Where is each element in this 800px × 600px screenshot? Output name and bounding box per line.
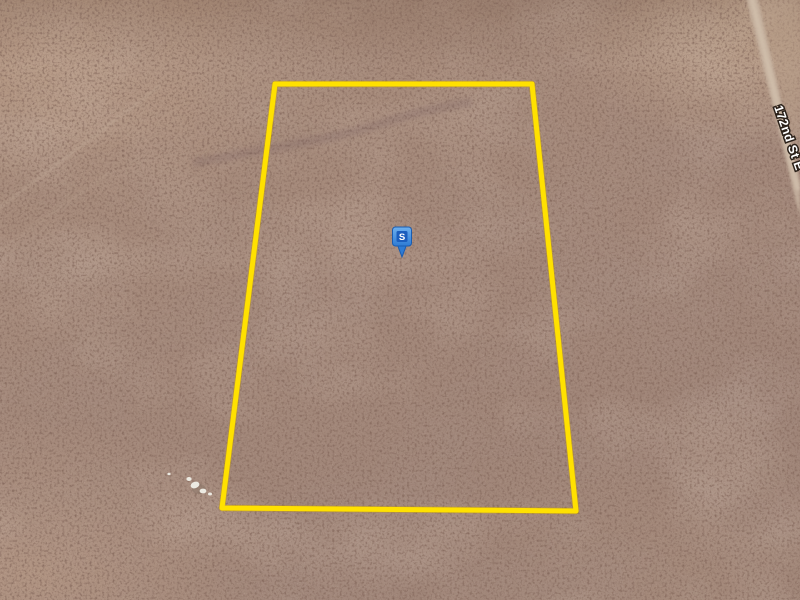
satellite-map-canvas[interactable]: S 172nd St E xyxy=(0,0,800,600)
marker-letter: S xyxy=(399,232,405,243)
map-overlay: S 172nd St E xyxy=(0,0,800,600)
